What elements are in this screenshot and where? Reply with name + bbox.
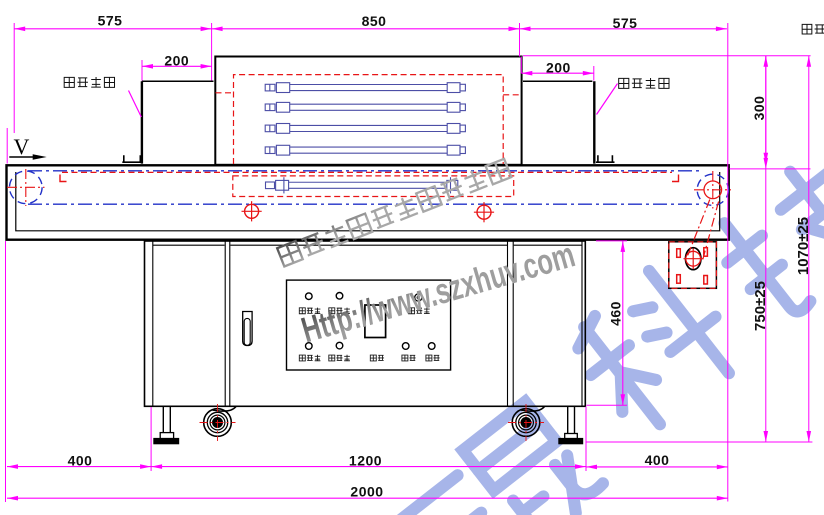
svg-text:750±25: 750±25 xyxy=(752,281,769,331)
svg-text:575: 575 xyxy=(98,13,123,29)
svg-text:300: 300 xyxy=(751,96,767,121)
svg-text:400: 400 xyxy=(68,452,93,468)
svg-text:1200: 1200 xyxy=(349,453,382,469)
svg-text:400: 400 xyxy=(645,452,670,468)
svg-text:2000: 2000 xyxy=(350,484,383,500)
svg-text:575: 575 xyxy=(613,15,638,31)
svg-text:200: 200 xyxy=(546,59,571,75)
svg-text:460: 460 xyxy=(608,301,624,326)
svg-text:850: 850 xyxy=(362,13,387,29)
svg-text:1070±25: 1070±25 xyxy=(795,217,812,275)
svg-text:200: 200 xyxy=(164,53,189,69)
svg-text:V: V xyxy=(14,134,30,159)
